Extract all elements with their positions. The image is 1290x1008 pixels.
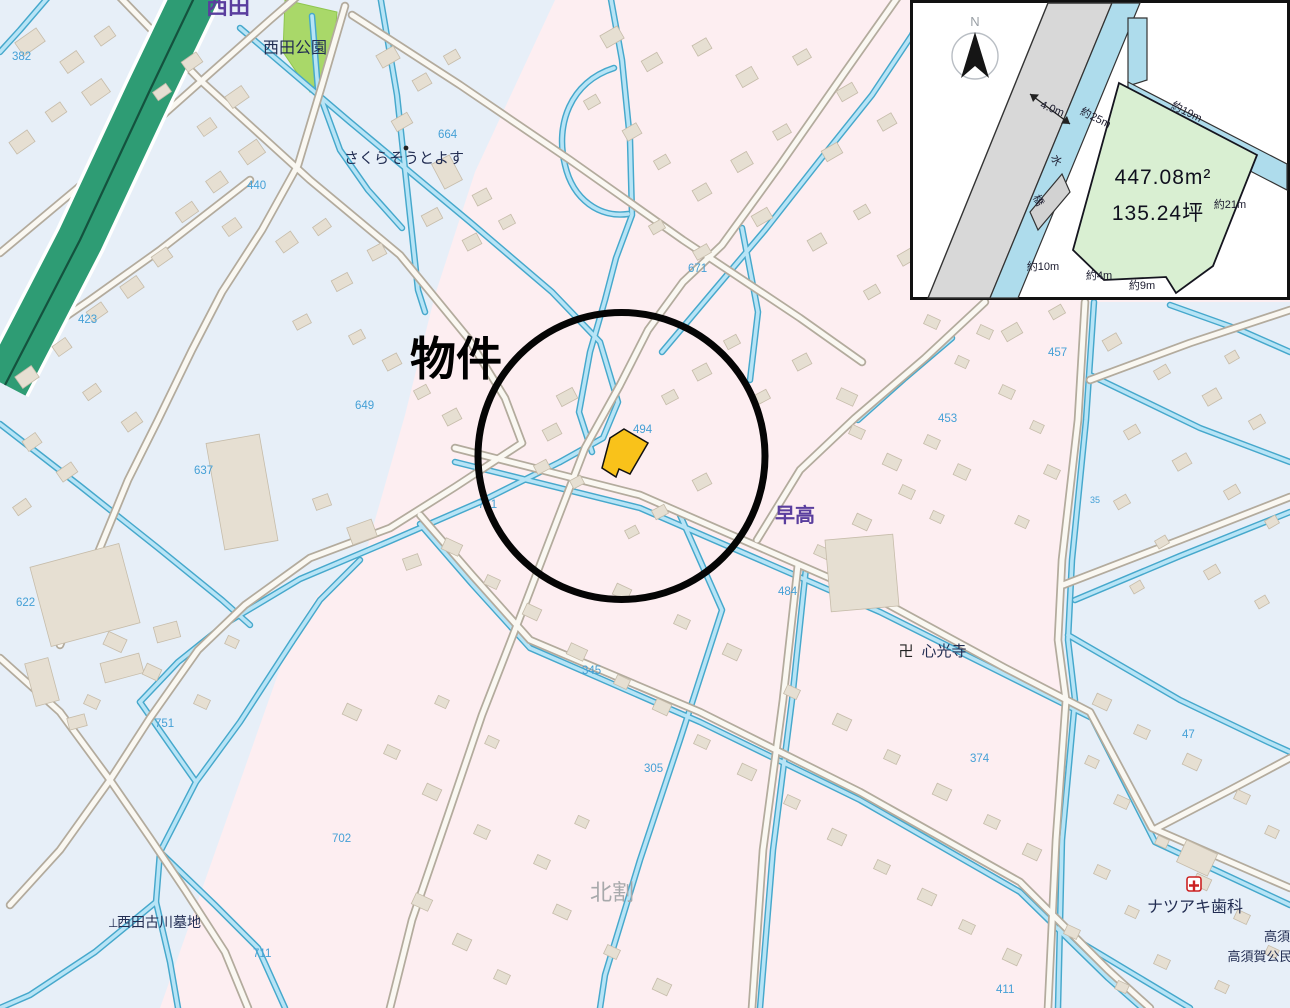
parcel-number-702: 702 <box>332 833 351 845</box>
plot-diagram-inset: N 4.0m 水 橋 約25m 約19m 約21m 約10m 約4m 約9m 4… <box>912 2 1289 299</box>
property-location-map: 382 664 440 423 649 671 637 494 761 622 … <box>0 0 1290 1008</box>
edge-10m-label: 約10m <box>1027 259 1059 273</box>
district-label-kitawari: 北割 <box>590 880 634 905</box>
parcel-number-671: 671 <box>688 263 707 275</box>
dental-clinic-icon <box>1187 877 1201 891</box>
parcel-number-751: 751 <box>155 718 174 730</box>
parcel-number-494: 494 <box>633 424 653 436</box>
parcel-number-453: 453 <box>938 413 957 425</box>
parcel-number-305: 305 <box>644 763 663 775</box>
parcel-number-345: 345 <box>582 665 601 677</box>
parcel-number-423: 423 <box>78 314 97 326</box>
parcel-number-664: 664 <box>438 129 458 141</box>
parcel-number-440: 440 <box>247 180 266 192</box>
parcel-number-374: 374 <box>970 753 990 765</box>
parcel-number-457: 457 <box>1048 347 1067 359</box>
parcel-number-637: 637 <box>194 465 213 477</box>
parcel-number-411: 411 <box>996 984 1014 996</box>
map-canvas: 382 664 440 423 649 671 637 494 761 622 … <box>0 0 1290 1008</box>
district-label-hayataka: 早高 <box>775 503 815 527</box>
parcel-number-622: 622 <box>16 597 35 609</box>
parcel-number-649: 649 <box>355 400 374 412</box>
district-label-nishida: 西田 <box>206 0 250 19</box>
parcel-number-382: 382 <box>12 51 31 63</box>
north-label: N <box>970 14 979 29</box>
park-label: 西田公園 <box>263 40 327 57</box>
temple-label-shinkouji: 心光寺 <box>921 643 966 660</box>
parcel-number-35: 35 <box>1090 495 1100 505</box>
temple-manji-icon: 卍 <box>898 643 913 660</box>
parcel-number-47: 47 <box>1182 729 1195 741</box>
label-takasuga-kouminkan: 高須賀公民 <box>1227 949 1290 964</box>
edge-21m-label: 約21m <box>1214 197 1246 211</box>
plot-area-tsubo: 135.24坪 <box>1112 202 1204 225</box>
building <box>825 534 899 612</box>
parcel-number-484: 484 <box>778 586 798 598</box>
label-takasu: 高須 <box>1264 929 1290 944</box>
dental-clinic-label: ナツアキ歯科 <box>1147 898 1243 916</box>
edge-4m-label: 約4m <box>1086 268 1112 282</box>
edge-9m-label: 約9m <box>1129 278 1155 292</box>
poi-label-sakurasou: さくらそうとよす <box>344 150 464 167</box>
parcel-number-711: 711 <box>253 948 271 960</box>
plot-area-sqm: 447.08m² <box>1115 166 1212 189</box>
property-label: 物件 <box>410 333 502 385</box>
cemetery-label: 西田古川墓地 <box>117 914 201 930</box>
